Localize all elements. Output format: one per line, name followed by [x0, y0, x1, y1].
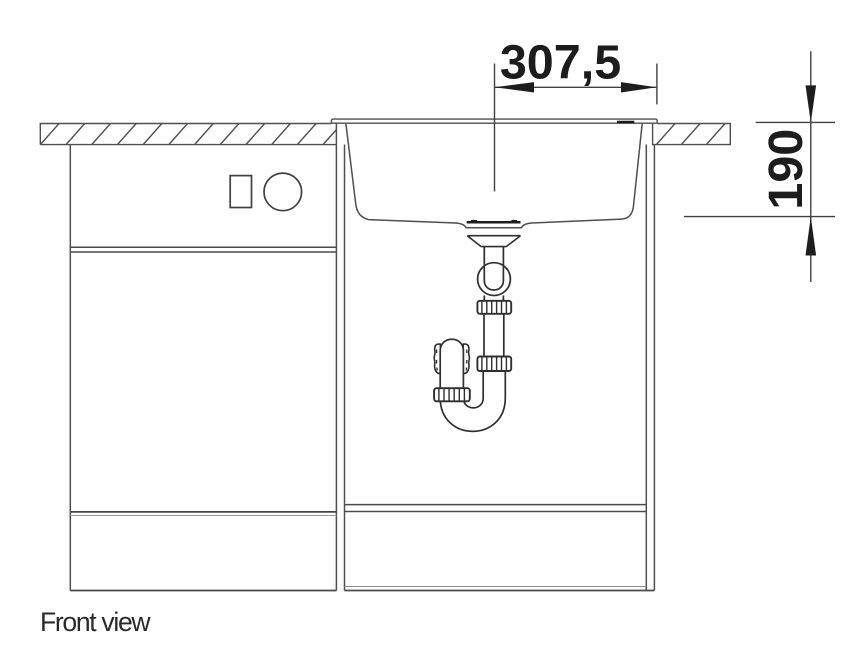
- svg-text:190: 190: [759, 129, 813, 210]
- svg-text:Front view: Front view: [40, 607, 151, 637]
- svg-text:307,5: 307,5: [500, 35, 621, 89]
